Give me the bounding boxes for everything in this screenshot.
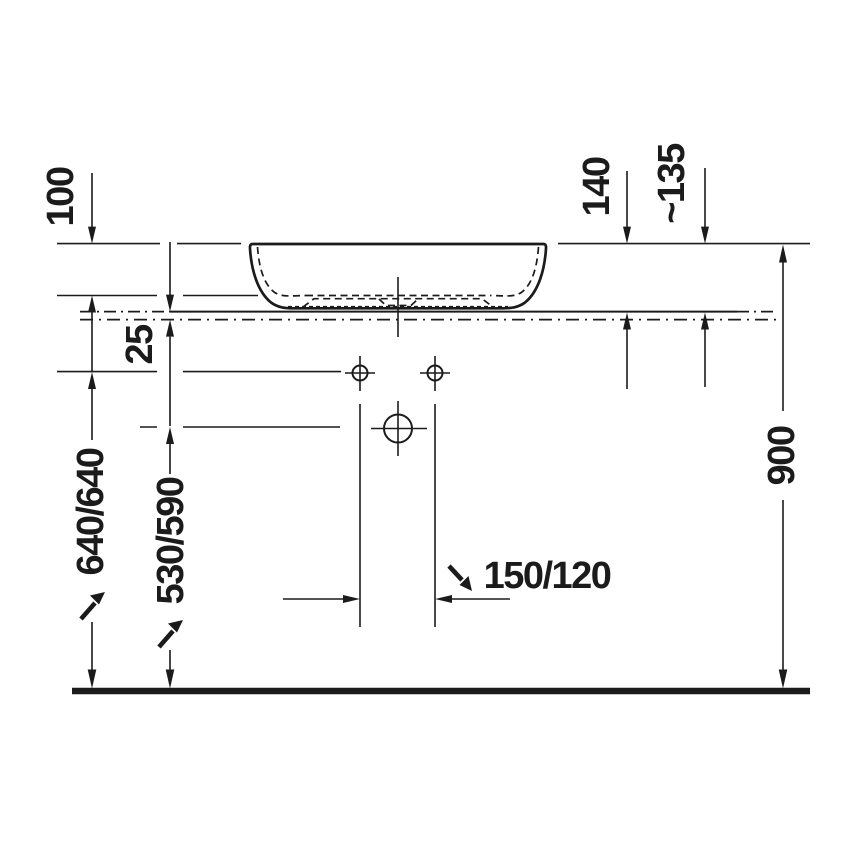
dim-label-drain-offset: 150/120: [484, 555, 611, 597]
dim-basin-height-front: ~135: [651, 143, 709, 387]
drain-outlet: [371, 401, 427, 456]
basin-inner-wall-right: [490, 247, 539, 296]
arrowhead-down: [88, 227, 96, 244]
technical-drawing-canvas: 100 140 ~135 25 640/640 530/59: [0, 0, 850, 850]
washbasin-dimension-diagram: 100 140 ~135 25 640/640 530/59: [0, 0, 850, 850]
dim-drain-offset: 150/120: [283, 555, 611, 603]
arrowhead-down: [166, 295, 174, 312]
dim-label-rim-height: 900: [761, 426, 803, 485]
arrowhead-up: [166, 427, 174, 444]
dim-label-counter-thickness: 25: [119, 324, 161, 365]
adjustable-arrow-shaft: [159, 631, 173, 647]
dim-label-bowl-depth: 100: [40, 167, 82, 226]
countertop: [80, 312, 777, 320]
arrowhead-down: [166, 670, 175, 689]
arrowhead-down: [779, 670, 788, 689]
dim-basin-height-back: 140: [576, 157, 631, 389]
adjustable-arrow-shaft: [449, 566, 462, 580]
supply-connections: [345, 356, 450, 391]
dim-counter-thickness: 25: [119, 242, 174, 426]
arrowhead-up: [88, 296, 96, 313]
dim-bowl-depth: 100: [40, 167, 96, 371]
arrowhead-up: [779, 245, 787, 263]
dim-label-basin-height-front: ~135: [651, 143, 693, 224]
adjustable-arrow-head: [90, 592, 105, 605]
adjustable-arrow-head: [168, 620, 183, 633]
dim-label-supply-height: 640/640: [70, 448, 112, 575]
adjustable-arrow-shaft: [81, 603, 95, 619]
arrowhead-right: [343, 595, 360, 603]
arrowhead-up: [623, 313, 631, 330]
washbasin: [250, 244, 546, 337]
dim-label-basin-height-back: 140: [576, 157, 618, 216]
arrowhead-down: [623, 227, 631, 244]
arrowhead-up: [166, 320, 174, 337]
basin-inner-wall-left: [258, 247, 307, 296]
dim-supply-height: 640/640: [70, 372, 112, 689]
arrowhead-down: [701, 227, 709, 244]
arrowhead-up: [88, 372, 96, 389]
arrowhead-up: [701, 313, 709, 330]
dim-label-drain-height: 530/590: [150, 477, 192, 604]
arrowhead-down: [88, 670, 97, 689]
arrowhead-left: [435, 595, 452, 603]
dim-drain-height: 530/590: [150, 427, 192, 689]
